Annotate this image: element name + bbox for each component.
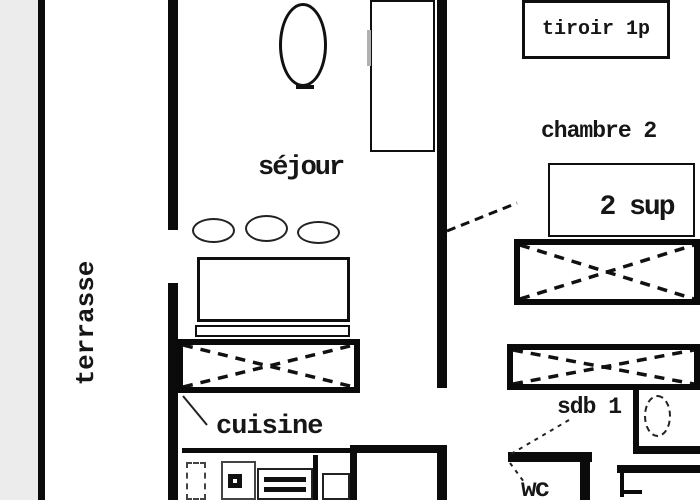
appliance-dashed <box>186 462 206 500</box>
chair-oval-2 <box>245 215 288 242</box>
bench <box>195 325 350 337</box>
terrace-outer-wall <box>38 0 45 500</box>
hatch-cross-icon <box>520 245 694 299</box>
bed-hatched <box>514 239 700 305</box>
floor-plan: terrasse séjour cuisine tiroir 1p chambr… <box>0 0 700 500</box>
sink-basin <box>322 473 350 500</box>
living-table-oval <box>279 3 327 87</box>
living-bedroom-partition-wall <box>437 0 447 388</box>
living-room-label: séjour <box>258 155 343 182</box>
washbasin-bottom-edge <box>633 446 700 454</box>
extra-sleeping-box: 2 sup <box>548 163 695 237</box>
extra-sleeping-label: 2 sup <box>599 192 673 223</box>
wc-wall-vertical <box>580 462 590 500</box>
drawer-annotation-label: tiroir 1p <box>542 18 650 41</box>
drawer-annotation-box: tiroir 1p <box>522 0 670 59</box>
wardrobe-hatched <box>507 344 700 390</box>
kitchen-door-line <box>183 396 207 425</box>
bathroom-label: sdb 1 <box>557 396 621 419</box>
counter-top-edge <box>350 445 447 453</box>
kitchen-counter-hatched <box>177 339 360 393</box>
hatch-cross-icon <box>513 350 694 384</box>
chair-oval-3 <box>297 221 340 244</box>
counter-left-edge <box>350 448 357 500</box>
sofa-edge-mark <box>367 30 371 66</box>
kitchen-label: cuisine <box>216 414 322 441</box>
shower-inner-mark <box>620 490 642 494</box>
sofa-unit <box>370 0 435 152</box>
terrace-label: terrasse <box>73 238 99 408</box>
wc-label: wc <box>521 476 548 500</box>
counter-right-wall <box>437 448 447 500</box>
shower-top-edge <box>617 465 700 473</box>
wc-wall-horizontal <box>508 452 592 462</box>
bedroom-door-swing-line <box>447 203 517 231</box>
oval-base-mark <box>296 85 314 89</box>
dining-table <box>197 257 350 322</box>
bedroom-label: chambre 2 <box>541 120 656 143</box>
washbasin-bowl <box>644 395 671 437</box>
outside-area <box>0 0 38 500</box>
terrace-inner-wall-upper <box>168 0 178 230</box>
washbasin-top-edge <box>633 385 700 388</box>
kitchen-divider <box>313 455 318 500</box>
chair-oval-1 <box>192 218 235 243</box>
kitchen-unit-top-edge <box>182 448 352 453</box>
stove-unit <box>257 468 313 500</box>
washbasin-left-edge <box>633 385 639 453</box>
bathroom-leader-line <box>511 420 569 454</box>
burner-knob-icon <box>228 474 242 488</box>
hatch-cross-icon <box>183 345 354 387</box>
